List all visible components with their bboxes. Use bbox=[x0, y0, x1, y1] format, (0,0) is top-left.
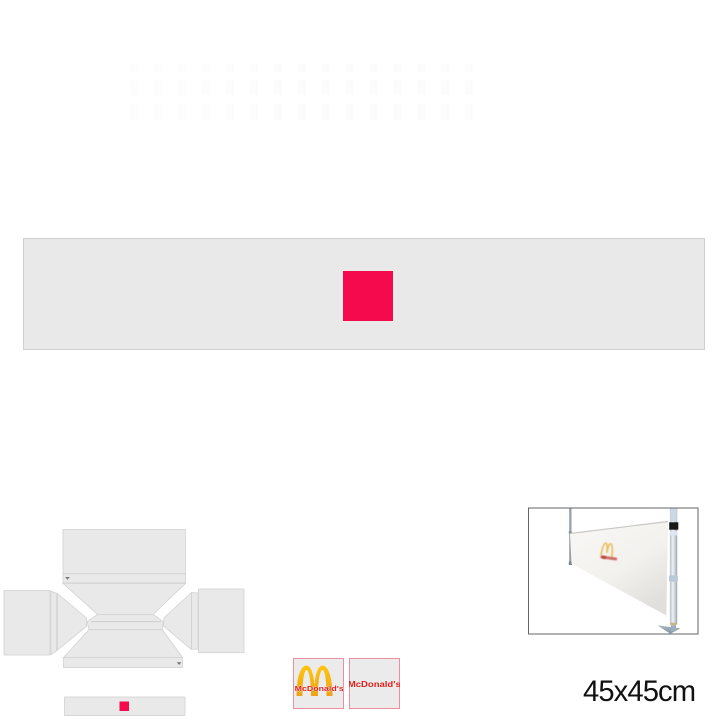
svg-text:McDonald's: McDonald's bbox=[294, 685, 343, 693]
svg-text:McDonald's: McDonald's bbox=[349, 679, 400, 688]
